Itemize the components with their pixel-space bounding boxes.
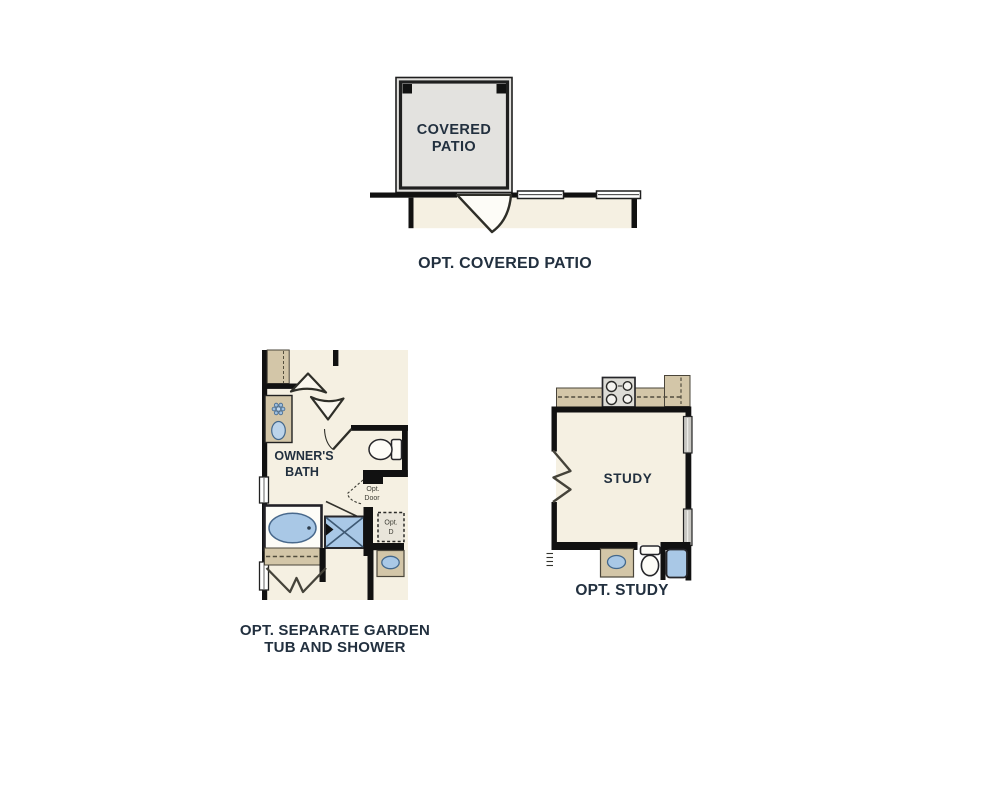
window bbox=[518, 191, 564, 199]
bath-room-label-line1: OWNER'S bbox=[274, 449, 333, 463]
laundry-sink bbox=[377, 551, 404, 577]
wall-bar bbox=[368, 543, 405, 550]
opt-door-label-line2: Door bbox=[364, 495, 380, 502]
bath-room-label-line2: BATH bbox=[285, 465, 319, 479]
caption-covered-patio: OPT. COVERED PATIO bbox=[374, 255, 636, 273]
floor-plan-options-sheet: COVERED PATIO OPT. COVERED PATIO bbox=[0, 0, 1000, 810]
linen-counter bbox=[265, 548, 323, 565]
caption-line1: OPT. SEPARATE GARDEN bbox=[220, 623, 450, 640]
house-interior-strip bbox=[414, 198, 632, 229]
upper-cabinet bbox=[267, 350, 289, 384]
vanity-sink bbox=[272, 422, 286, 440]
burner bbox=[623, 382, 632, 391]
interior-wall-stub-right bbox=[632, 197, 638, 228]
burner bbox=[607, 395, 617, 405]
shower bbox=[325, 517, 364, 549]
caption-garden-tub-shower: OPT. SEPARATE GARDEN TUB AND SHOWER bbox=[220, 623, 450, 656]
study-left-wall-upper bbox=[552, 407, 557, 452]
shower-pan bbox=[667, 550, 688, 578]
window bbox=[684, 417, 693, 454]
burner bbox=[607, 382, 617, 392]
window bbox=[260, 477, 269, 503]
caption-study: OPT. STUDY bbox=[546, 582, 698, 600]
house-wall-left-segment bbox=[370, 193, 457, 198]
garden-tub bbox=[265, 506, 322, 551]
caption-line2: TUB AND SHOWER bbox=[220, 640, 450, 657]
opt-dryer-label-line1: Opt. bbox=[384, 520, 397, 527]
wall-lower-right bbox=[368, 543, 374, 600]
study-plan: STUDY bbox=[543, 370, 700, 588]
burner bbox=[623, 395, 632, 404]
window bbox=[684, 509, 693, 546]
window bbox=[597, 191, 641, 199]
patio-post-left bbox=[403, 84, 413, 94]
patio-room-label-line2: PATIO bbox=[432, 139, 476, 155]
bath-sink bbox=[601, 549, 634, 578]
study-top-wall bbox=[552, 407, 691, 413]
window bbox=[260, 562, 269, 590]
covered-patio-plan: COVERED PATIO bbox=[360, 65, 650, 240]
cooktop bbox=[603, 378, 636, 408]
wall-shower-divider bbox=[661, 545, 666, 580]
wall-stub-top bbox=[333, 350, 338, 366]
interior-wall-stub-left bbox=[409, 198, 414, 229]
patio-room-label-line1: COVERED bbox=[417, 122, 492, 138]
opt-door-label-line1: Opt. bbox=[366, 486, 379, 493]
opt-dryer-box bbox=[378, 513, 404, 542]
opt-dryer-label-line2: D bbox=[388, 529, 393, 536]
stair-hatch bbox=[547, 554, 554, 566]
toilet bbox=[641, 546, 661, 576]
patio-post-right bbox=[497, 84, 507, 94]
owners-bath-plan: OWNER'S BATH Opt. Door Opt. D bbox=[248, 346, 426, 606]
wall-stub-bottom bbox=[320, 548, 326, 582]
toilet bbox=[369, 440, 402, 460]
study-room-label: STUDY bbox=[604, 471, 653, 486]
